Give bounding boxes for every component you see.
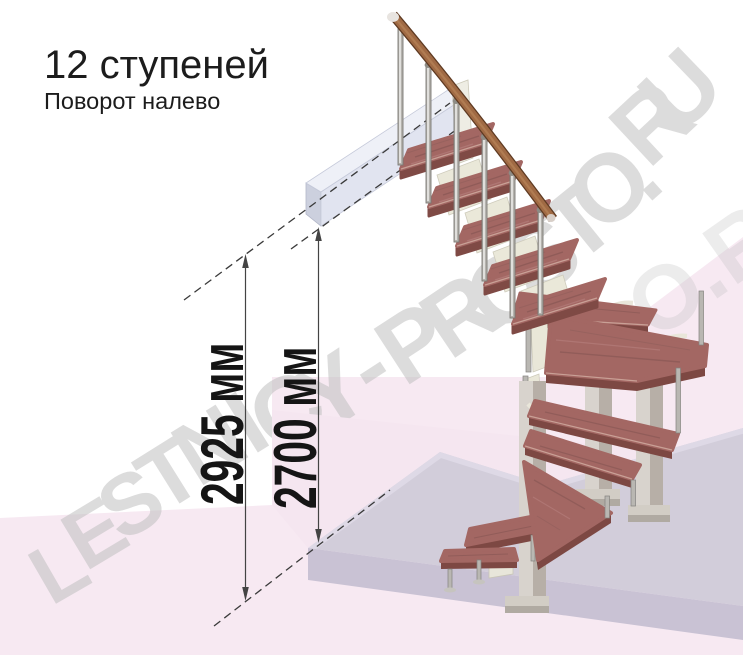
svg-text:12 ступеней: 12 ступеней xyxy=(44,43,269,87)
svg-text:Поворот налево: Поворот налево xyxy=(44,88,220,114)
svg-text:2700 мм: 2700 мм xyxy=(262,347,329,509)
svg-text:2925 мм: 2925 мм xyxy=(189,343,256,505)
